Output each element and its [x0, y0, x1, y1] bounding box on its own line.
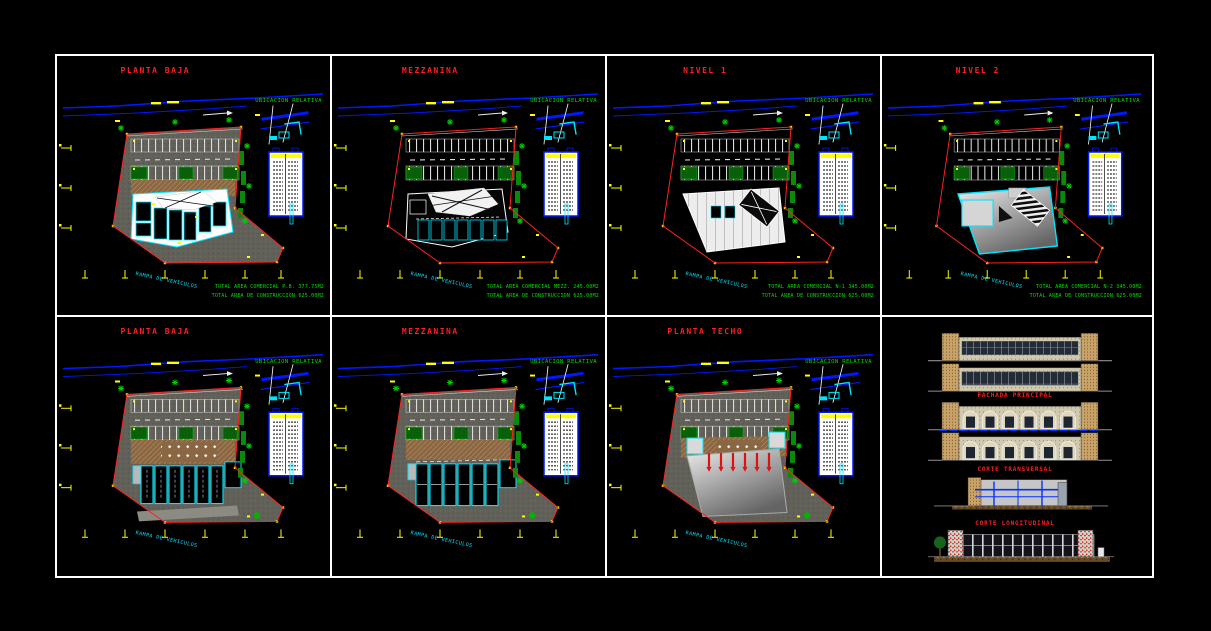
- fachada-principal-label: FACHADA PRINCIPAL: [882, 392, 1148, 399]
- panel-title: PLANTA BAJA: [57, 66, 254, 75]
- elevations-drawing: [882, 317, 1148, 574]
- cad-sheet-stage: PLANTA BAJA UBICACION RELATIVA RAMPA DE …: [0, 0, 1211, 631]
- panel-title: NIVEL 2: [882, 66, 1074, 75]
- roof-plan-drawing: [607, 317, 880, 574]
- drawing-sheet-frame: PLANTA BAJA UBICACION RELATIVA RAMPA DE …: [55, 54, 1154, 578]
- panel-nivel-1: NIVEL 1 UBICACION RELATIVA RAMPA DE VEHI…: [607, 56, 880, 315]
- location-label: UBICACION RELATIVA: [255, 98, 322, 104]
- area-totals: TOTAL AREA COMERCIAL P.B. 377.75M2 TOTAL…: [212, 283, 324, 301]
- total-line: TOTAL AREA COMERCIAL N-2 345.00M2: [1030, 283, 1142, 292]
- location-label: UBICACION RELATIVA: [805, 359, 872, 365]
- panel-planta-baja-2: PLANTA BAJA UBICACION RELATIVA RAMPA DE …: [57, 317, 330, 574]
- corte-transversal-label: CORTE TRANSVERSAL: [882, 466, 1148, 473]
- location-label: UBICACION RELATIVA: [255, 359, 322, 365]
- total-line: TOTAL AREA DE CONSTRUCCION 625.00M2: [762, 292, 874, 301]
- mezzanine-plan-drawing: [332, 56, 605, 315]
- area-totals: TOTAL AREA COMERCIAL N-1 345.00M2 TOTAL …: [762, 283, 874, 301]
- total-line: TOTAL AREA COMERCIAL P.B. 377.75M2: [212, 283, 324, 292]
- panel-title: PLANTA BAJA: [57, 327, 254, 336]
- total-line: TOTAL AREA DE CONSTRUCCION 625.00M2: [212, 292, 324, 301]
- site-plan-drawing: [57, 56, 330, 315]
- corte-longitudinal-label: CORTE LONGITUDINAL: [882, 520, 1148, 527]
- total-line: TOTAL AREA COMERCIAL N-1 345.00M2: [762, 283, 874, 292]
- groundfloor-plan-drawing: [57, 317, 330, 574]
- location-label: UBICACION RELATIVA: [805, 98, 872, 104]
- location-label: UBICACION RELATIVA: [530, 98, 597, 104]
- panel-title: NIVEL 1: [607, 66, 804, 75]
- location-label: UBICACION RELATIVA: [1073, 98, 1140, 104]
- panel-nivel-2: NIVEL 2 UBICACION RELATIVA RAMPA DE VEHI…: [882, 56, 1148, 315]
- panel-planta-techo: PLANTA TECHO UBICACION RELATIVA RAMPA DE…: [607, 317, 880, 574]
- panel-mezzanina-1: MEZZANINA UBICACION RELATIVA RAMPA DE VE…: [332, 56, 605, 315]
- panel-title: MEZZANINA: [332, 66, 529, 75]
- panel-mezzanina-2: MEZZANINA UBICACION RELATIVA RAMPA DE VE…: [332, 317, 605, 574]
- total-line: TOTAL AREA COMERCIAL MEZZ. 245.00M2: [487, 283, 599, 292]
- level2-plan-drawing: [882, 56, 1148, 315]
- panel-planta-baja-1: PLANTA BAJA UBICACION RELATIVA RAMPA DE …: [57, 56, 330, 315]
- area-totals: TOTAL AREA COMERCIAL N-2 345.00M2 TOTAL …: [1030, 283, 1142, 301]
- panel-elevations-sections: FACHADA PRINCIPAL CORTE TRANSVERSAL CORT…: [882, 317, 1148, 574]
- total-line: TOTAL AREA DE CONSTRUCCION 625.00M2: [487, 292, 599, 301]
- mezzanine2-plan-drawing: [332, 317, 605, 574]
- area-totals: TOTAL AREA COMERCIAL MEZZ. 245.00M2 TOTA…: [487, 283, 599, 301]
- total-line: TOTAL AREA DE CONSTRUCCION 625.00M2: [1030, 292, 1142, 301]
- panel-title: MEZZANINA: [332, 327, 529, 336]
- location-label: UBICACION RELATIVA: [530, 359, 597, 365]
- panel-title: PLANTA TECHO: [607, 327, 804, 336]
- level1-plan-drawing: [607, 56, 880, 315]
